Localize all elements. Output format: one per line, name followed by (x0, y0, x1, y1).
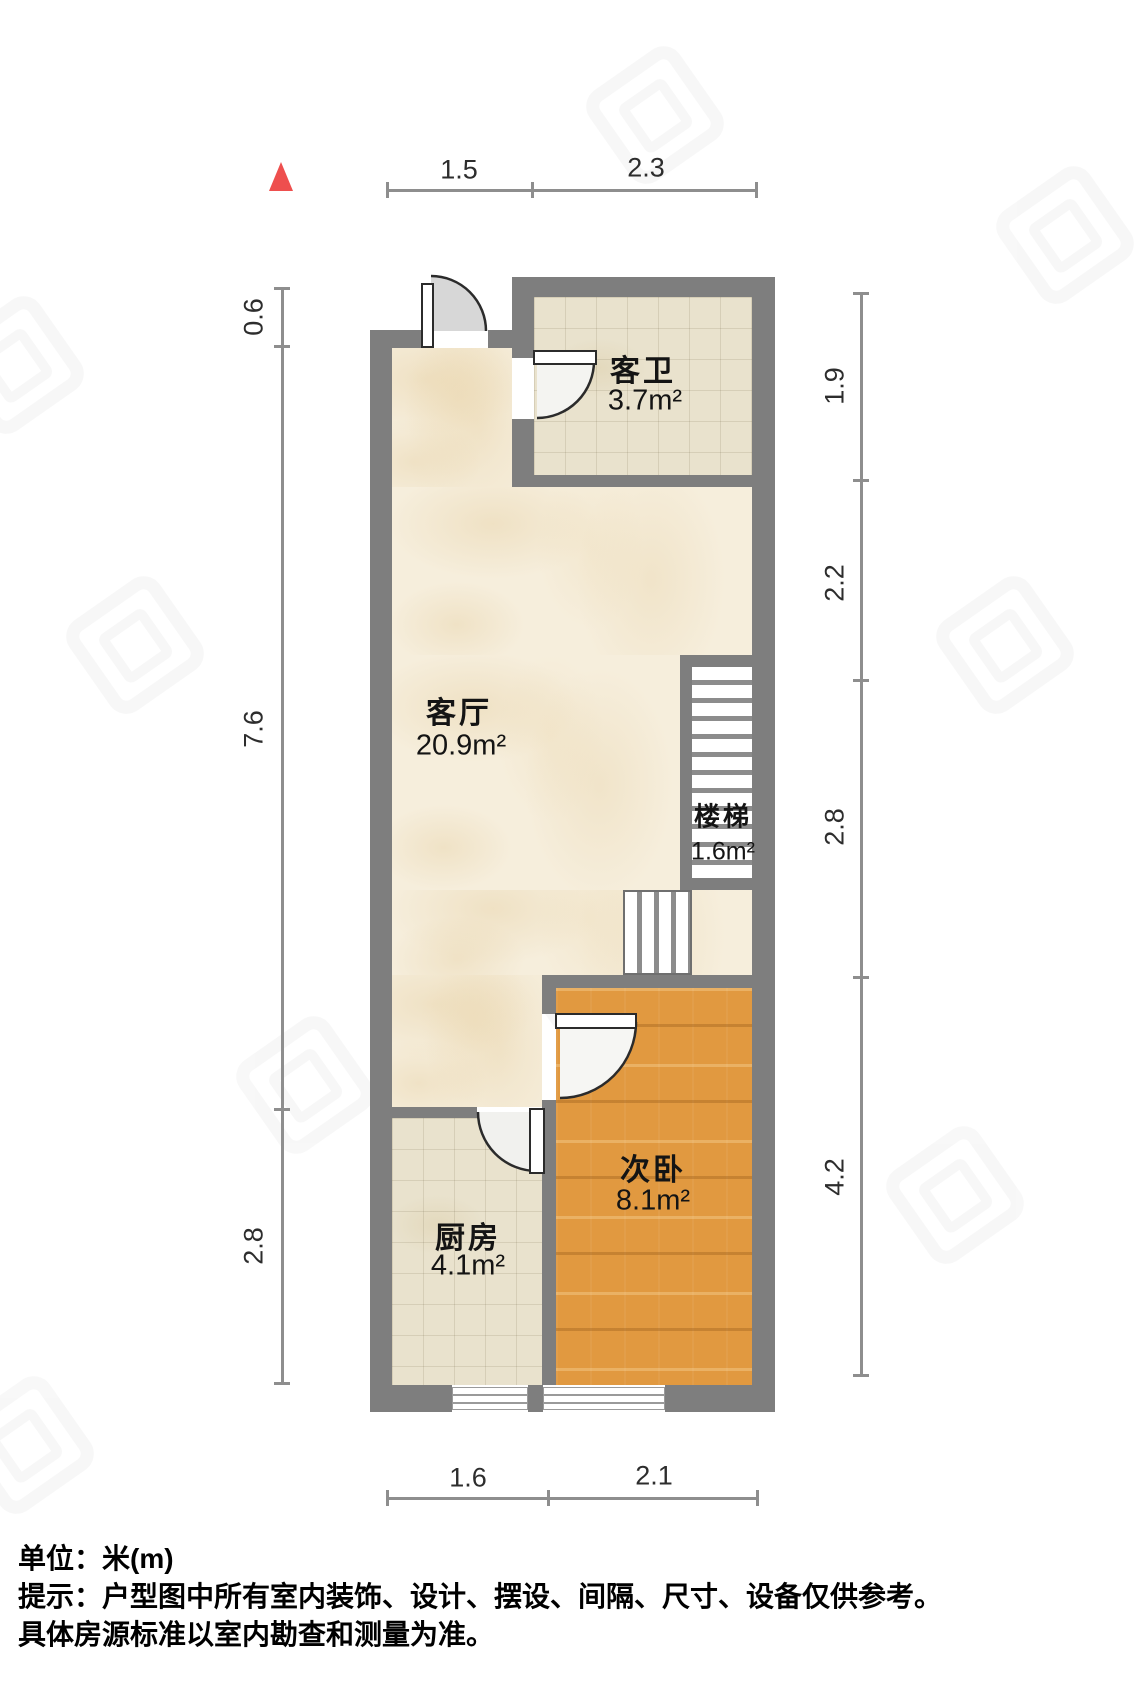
dim-top-1: 1.5 (440, 155, 478, 186)
dim-tick (386, 1490, 389, 1506)
wall-segment (512, 277, 775, 297)
wall-segment (512, 297, 534, 358)
disclaimer-line2: 具体房源标准以室内勘查和测量为准。 (18, 1616, 942, 1654)
dim-top-2: 2.3 (627, 153, 665, 184)
dim-left-2: 7.6 (239, 710, 270, 748)
wall-segment (752, 277, 775, 1412)
watermark-logo (988, 158, 1141, 311)
dim-tick (547, 1490, 550, 1506)
watermark-logo (228, 1008, 381, 1161)
kitchen-area: 4.1m² (431, 1250, 505, 1283)
stairs-area: 1.6m² (691, 838, 755, 867)
floorplan-canvas: 客厅 20.9m² 客卫 3.7m² 楼梯 1.6m² 次卧 8.1m² 厨房 … (0, 0, 1144, 1689)
dim-right-3: 2.8 (820, 808, 851, 846)
dim-tick (853, 1374, 869, 1377)
living-floor (392, 487, 752, 655)
dim-tick (755, 182, 758, 198)
wall-segment (392, 1107, 477, 1118)
disclaimer-line1: 提示：户型图中所有室内装饰、设计、摆设、间隔、尺寸、设备仅供参考。 (18, 1578, 942, 1616)
dim-left-1: 0.6 (239, 298, 270, 336)
bathroom-area: 3.7m² (608, 385, 682, 418)
living-floor (392, 975, 542, 1107)
dim-bottom-2: 2.1 (635, 1461, 673, 1492)
stairs-label: 楼梯 (694, 797, 752, 834)
wall-segment (512, 475, 752, 487)
wall-segment (542, 975, 775, 988)
dim-tick (274, 287, 290, 290)
wall-segment (370, 1385, 452, 1412)
living-room-label: 客厅 (426, 688, 492, 732)
wall-segment (488, 330, 512, 348)
wall-segment (528, 1385, 543, 1412)
watermark-logo (58, 568, 211, 721)
bedroom-label: 次卧 (620, 1145, 686, 1189)
dim-line-bottom (387, 1497, 758, 1500)
bathroom-label: 客卫 (610, 346, 676, 390)
wall-segment (665, 1385, 775, 1412)
living-floor (392, 890, 752, 975)
dim-right-2: 2.2 (820, 564, 851, 602)
unit-label: 单位：米(m) (18, 1540, 942, 1578)
dim-tick (853, 976, 869, 979)
stairs-lower-flight (623, 890, 692, 975)
dim-tick (853, 292, 869, 295)
wall-segment (680, 878, 752, 890)
living-room-area: 20.9m² (416, 730, 506, 763)
watermark-logo (0, 288, 92, 441)
entrance-door (422, 276, 486, 347)
dim-tick (274, 1382, 290, 1385)
dim-tick (274, 345, 290, 348)
watermark-logo (0, 1368, 102, 1521)
wall-segment (370, 330, 392, 1412)
kitchen-window (452, 1387, 528, 1410)
footer-notes: 单位：米(m) 提示：户型图中所有室内装饰、设计、摆设、间隔、尺寸、设备仅供参考… (18, 1540, 942, 1654)
dim-tick (853, 479, 869, 482)
dim-tick (274, 1108, 290, 1111)
dim-tick (853, 679, 869, 682)
dim-right-1: 1.9 (820, 367, 851, 405)
dim-line-top (387, 189, 757, 192)
bedroom-area: 8.1m² (616, 1185, 690, 1218)
dim-tick (756, 1490, 759, 1506)
wall-segment (542, 975, 556, 1014)
bedroom-window (543, 1387, 665, 1410)
dim-tick (386, 182, 389, 198)
wall-segment (542, 1100, 556, 1385)
dim-line-right (860, 293, 863, 1377)
watermark-logo (878, 1118, 1031, 1271)
living-floor (392, 348, 512, 487)
dim-right-4: 4.2 (820, 1158, 851, 1196)
watermark-logo (928, 568, 1081, 721)
north-arrow-icon (269, 162, 293, 191)
dim-tick (531, 182, 534, 198)
dim-bottom-1: 1.6 (449, 1463, 487, 1494)
dim-left-3: 2.8 (239, 1227, 270, 1265)
dim-line-left (281, 288, 284, 1385)
